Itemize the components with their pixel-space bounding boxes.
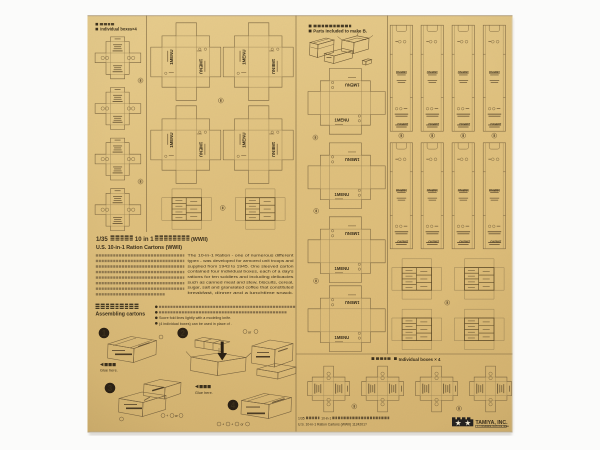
svg-text:10 in 1: 10 in 1 xyxy=(135,237,154,243)
svg-text:Score fold lines lightly with: Score fold lines lightly with a modeling… xyxy=(159,316,231,320)
svg-text:3-7 ONDAWARA, SHIZUOKA, JAPAN: 3-7 ONDAWARA, SHIZUOKA, JAPAN xyxy=(477,425,510,428)
svg-text:1: 1 xyxy=(102,329,107,338)
svg-text:contained four individual boxe: contained four individual boxes, each of… xyxy=(188,270,294,274)
svg-text:+: + xyxy=(166,414,168,418)
svg-text:(4 individual boxes) can be us: (4 individual boxes) can be used in plac… xyxy=(159,322,232,326)
svg-text:3: 3 xyxy=(108,384,113,393)
svg-text:(WWII): (WWII) xyxy=(191,237,208,243)
svg-text:2: 2 xyxy=(180,329,185,338)
svg-text:rations for ten soldiers and i: rations for ten soldiers and including d… xyxy=(188,275,294,279)
svg-text:+: + xyxy=(222,423,224,427)
svg-text:U.S. 10-in-1 Ration Cartons (W: U.S. 10-in-1 Ration Cartons (WWII) xyxy=(96,245,182,251)
svg-text:Assembling cartons: Assembling cartons xyxy=(96,311,146,317)
svg-text:Parts included to make B.: Parts included to make B. xyxy=(313,29,367,34)
svg-text:+: + xyxy=(231,423,233,427)
svg-text:4: 4 xyxy=(231,401,236,410)
svg-text:Individual boxes × 4: Individual boxes × 4 xyxy=(399,357,441,362)
svg-text:1/35: 1/35 xyxy=(96,237,108,243)
svg-text:Glue here.: Glue here. xyxy=(195,391,213,395)
svg-text:sugar, salt and granulated cof: sugar, salt and granulated coffee that c… xyxy=(188,286,294,290)
svg-text:Individual boxes×4: Individual boxes×4 xyxy=(100,27,137,32)
svg-text:typex - was developed for armo: typex - was developed for armored unit t… xyxy=(188,259,294,263)
svg-text:Glue here.: Glue here. xyxy=(100,369,118,373)
svg-text:supplied from 1943 to 1945. On: supplied from 1943 to 1945. One sleeved … xyxy=(188,264,294,268)
svg-text:U.S. 10-in-1 Ration Cartons (W: U.S. 10-in-1 Ration Cartons (WWII) 11242… xyxy=(298,423,367,427)
svg-text:breakfast, dinner and a luncht: breakfast, dinner and a lunchtime snack. xyxy=(188,291,294,295)
svg-text:The 10-in-1 Ration - one of nu: The 10-in-1 Ration - one of numerous dif… xyxy=(188,254,294,258)
svg-text:such as canned meat and stew,: such as canned meat and stew, biscuits, … xyxy=(188,280,294,284)
svg-text:1/35: 1/35 xyxy=(298,417,305,421)
svg-text:10-in-1: 10-in-1 xyxy=(321,416,331,420)
